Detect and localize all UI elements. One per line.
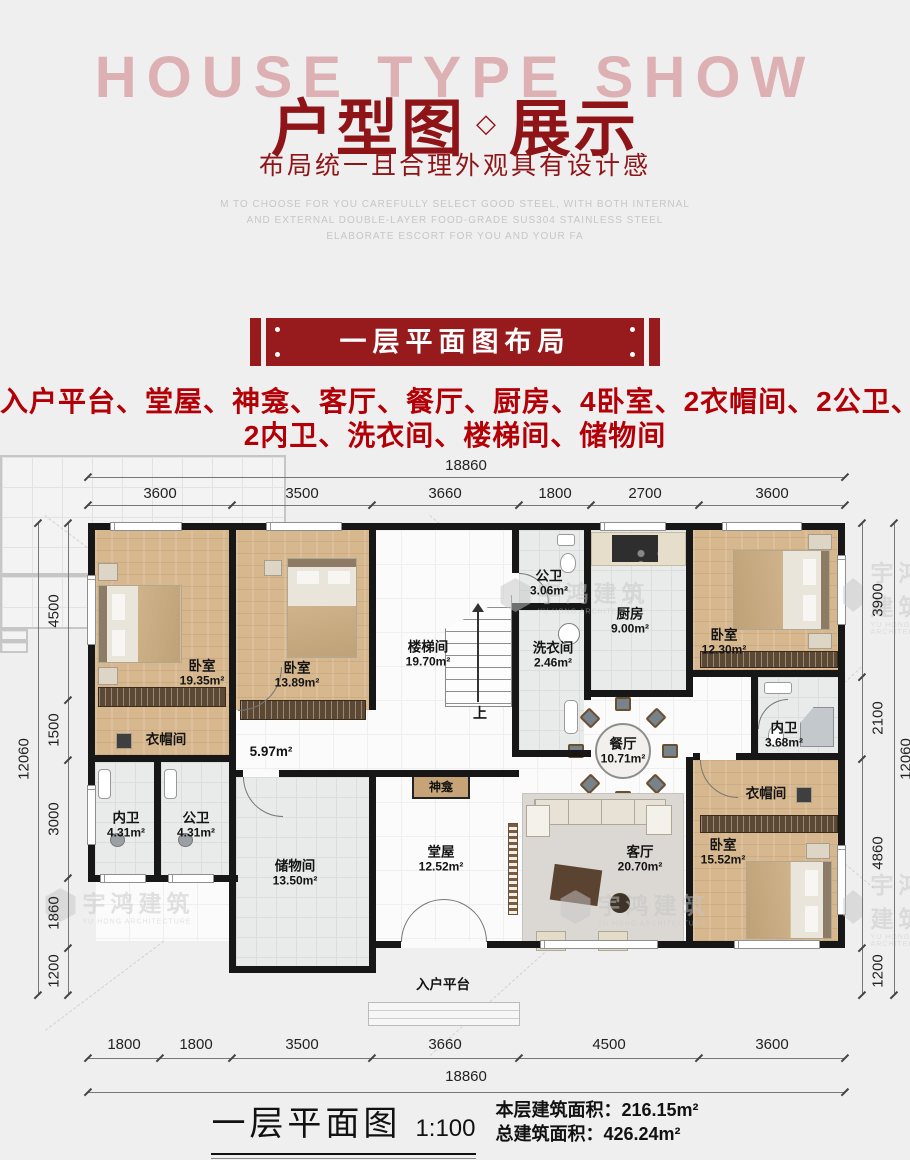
plan-watermark: 宇鸿建筑YU HONG ARCHITECTURE bbox=[561, 887, 710, 928]
room-label-bath-bl-2: 公卫4.31m² bbox=[177, 810, 215, 839]
dim-top-seg: 3660 bbox=[428, 485, 461, 502]
plan-watermark: 宇鸿建筑YU HONG ARCHITECTURE bbox=[843, 866, 910, 948]
plan-scale: 1:100 bbox=[415, 1115, 475, 1145]
dim-left-seg: 1200 bbox=[46, 954, 63, 987]
chair bbox=[645, 773, 666, 794]
entry-steps bbox=[368, 1002, 520, 1026]
wall bbox=[376, 770, 519, 777]
room-label-kitchen: 厨房9.00m² bbox=[611, 606, 649, 635]
nightstand bbox=[806, 843, 830, 859]
stair-arrow bbox=[477, 610, 479, 702]
yuhong-logo-icon bbox=[561, 890, 591, 924]
dim-top-total: 18860 bbox=[445, 457, 487, 474]
sink bbox=[164, 769, 177, 799]
dim-bottom-seg: 1800 bbox=[107, 1036, 140, 1053]
plan-title: 一层平面图 bbox=[211, 1096, 401, 1145]
dim-right-outer: 12060 bbox=[898, 738, 910, 780]
window bbox=[266, 522, 342, 531]
window bbox=[100, 874, 146, 883]
banner-dot bbox=[630, 352, 635, 357]
footer: 一层平面图 1:100 本层建筑面积：216.15m² 总建筑面积：426.24… bbox=[0, 1096, 910, 1155]
cloak-cabinet bbox=[796, 787, 812, 803]
stove bbox=[612, 535, 658, 562]
room-label-bedroom-br: 卧室15.52m² bbox=[701, 837, 746, 866]
diamond-icon: ◇ bbox=[466, 108, 509, 138]
dim-left-outer: 12060 bbox=[16, 738, 33, 780]
dim-bottom-total: 18860 bbox=[445, 1068, 487, 1085]
window bbox=[540, 940, 658, 949]
wall bbox=[229, 966, 376, 973]
nightstand bbox=[264, 560, 282, 576]
porch-pier bbox=[0, 641, 28, 653]
room-label-bath-right: 内卫3.68m² bbox=[765, 720, 803, 749]
section-banner-row: 一层平面图布局 bbox=[0, 318, 910, 366]
dim-line bbox=[88, 505, 845, 506]
sink bbox=[557, 534, 575, 546]
dim-left-seg: 1500 bbox=[46, 713, 63, 746]
door-gap bbox=[401, 941, 487, 948]
nightstand bbox=[808, 633, 832, 649]
dim-line bbox=[88, 477, 845, 478]
total-area-line: 总建筑面积：426.24m² bbox=[496, 1122, 699, 1146]
wall bbox=[693, 670, 845, 677]
banner-side-bar bbox=[649, 318, 660, 366]
room-label-hallway: 5.97m² bbox=[250, 744, 293, 760]
wall bbox=[229, 523, 236, 762]
room-label-bedroom-tr: 卧室12.30m² bbox=[702, 627, 747, 656]
room-label-hall: 堂屋12.52m² bbox=[419, 844, 464, 873]
cloak-cabinet bbox=[116, 733, 132, 749]
wall bbox=[369, 770, 376, 973]
armchair bbox=[646, 805, 672, 835]
chair bbox=[615, 697, 631, 711]
window bbox=[600, 522, 666, 531]
wall bbox=[229, 762, 236, 973]
stairs-up-label: 上 bbox=[473, 705, 487, 721]
wardrobe bbox=[700, 815, 838, 833]
room-label-bedroom-tl: 卧室19.35m² bbox=[180, 658, 225, 687]
feature-line-2: 2内卫、洗衣间、楼梯间、储物间 bbox=[0, 414, 910, 454]
wall bbox=[751, 677, 758, 760]
plan-title-block: 一层平面图 1:100 bbox=[211, 1096, 475, 1155]
dim-top-seg: 2700 bbox=[628, 485, 661, 502]
wall bbox=[686, 523, 693, 697]
dim-right-seg: 4860 bbox=[870, 836, 887, 869]
dim-top-seg: 1800 bbox=[538, 485, 571, 502]
chair bbox=[662, 744, 678, 758]
wall bbox=[584, 690, 693, 697]
banner-dot bbox=[275, 327, 280, 332]
banner-dot bbox=[275, 352, 280, 357]
yuhong-logo-icon bbox=[501, 578, 531, 612]
dim-line bbox=[894, 523, 895, 995]
area-info: 本层建筑面积：216.15m² 总建筑面积：426.24m² bbox=[496, 1096, 699, 1146]
door-gap bbox=[700, 753, 736, 760]
dim-bottom-seg: 1800 bbox=[179, 1036, 212, 1053]
poster-page: HOUSE TYPE SHOW 户型图◇展示 布局统一且合理外观具有设计感 M … bbox=[0, 0, 910, 1160]
dim-bottom-seg: 3660 bbox=[428, 1036, 461, 1053]
dim-left-seg: 4500 bbox=[46, 594, 63, 627]
door-gap bbox=[243, 770, 279, 777]
yuhong-logo-icon bbox=[843, 890, 863, 924]
wall bbox=[88, 755, 236, 762]
slat-screen bbox=[508, 823, 518, 915]
bed bbox=[746, 861, 832, 939]
window bbox=[87, 575, 96, 645]
dim-bottom-seg: 3600 bbox=[755, 1036, 788, 1053]
dim-line bbox=[88, 1058, 845, 1059]
sink bbox=[98, 769, 111, 799]
window bbox=[734, 940, 820, 949]
wall bbox=[154, 762, 161, 875]
room-label-bath-bl-1: 内卫4.31m² bbox=[107, 810, 145, 839]
armchair bbox=[526, 805, 550, 837]
room-label-laundry: 洗衣间2.46m² bbox=[533, 640, 574, 669]
room-label-storage: 储物间13.50m² bbox=[273, 858, 318, 887]
room-label-cloak-right: 衣帽间 bbox=[746, 786, 787, 802]
dim-right-seg: 1200 bbox=[870, 954, 887, 987]
stair-arrow-head bbox=[472, 603, 484, 612]
room-label-bath-top: 公卫3.06m² bbox=[530, 568, 568, 597]
window bbox=[110, 522, 182, 531]
header-english-text: M TO CHOOSE FOR YOU CAREFULLY SELECT GOO… bbox=[0, 197, 910, 245]
dim-top-seg: 3600 bbox=[755, 485, 788, 502]
nightstand bbox=[808, 534, 832, 550]
yuhong-logo-icon bbox=[843, 578, 863, 612]
floor-plan: 神龛 bbox=[0, 455, 910, 1155]
room-label-dining: 餐厅10.71m² bbox=[601, 736, 646, 765]
nightstand bbox=[98, 563, 118, 581]
dim-line bbox=[88, 1092, 845, 1093]
window bbox=[87, 785, 96, 845]
wall bbox=[512, 523, 519, 757]
wall bbox=[512, 750, 591, 757]
window bbox=[722, 522, 802, 531]
porch-pier bbox=[0, 629, 28, 641]
window bbox=[168, 874, 214, 883]
dim-top-seg: 3500 bbox=[285, 485, 318, 502]
dim-right-seg: 2100 bbox=[870, 701, 887, 734]
dim-left-seg: 3000 bbox=[46, 802, 63, 835]
bed bbox=[733, 550, 830, 630]
banner-side-bar bbox=[250, 318, 261, 366]
room-label-bedroom-tm: 卧室13.89m² bbox=[275, 660, 320, 689]
dim-right-seg: 3900 bbox=[870, 583, 887, 616]
room-label-living: 客厅20.70m² bbox=[618, 844, 663, 873]
section-banner: 一层平面图布局 bbox=[266, 318, 644, 366]
chair bbox=[579, 707, 600, 728]
dim-line bbox=[38, 523, 39, 995]
floor-area-line: 本层建筑面积：216.15m² bbox=[496, 1098, 699, 1122]
dim-bottom-seg: 3500 bbox=[285, 1036, 318, 1053]
chair bbox=[579, 773, 600, 794]
sink bbox=[764, 682, 792, 694]
bed bbox=[98, 585, 182, 663]
wall bbox=[369, 523, 376, 710]
page-subtitle: 布局统一且合理外观具有设计感 bbox=[0, 146, 910, 182]
banner-dot bbox=[630, 327, 635, 332]
room-label-cloak-left: 衣帽间 bbox=[146, 732, 187, 748]
bed bbox=[287, 558, 357, 658]
dim-bottom-seg: 4500 bbox=[592, 1036, 625, 1053]
chair bbox=[645, 707, 666, 728]
dim-left-seg: 1860 bbox=[46, 896, 63, 929]
room-label-platform: 入户平台 bbox=[416, 977, 470, 993]
nightstand bbox=[98, 667, 118, 685]
room-label-stairwell: 楼梯间19.70m² bbox=[406, 639, 451, 668]
wardrobe bbox=[98, 687, 226, 707]
dim-top-seg: 3600 bbox=[143, 485, 176, 502]
